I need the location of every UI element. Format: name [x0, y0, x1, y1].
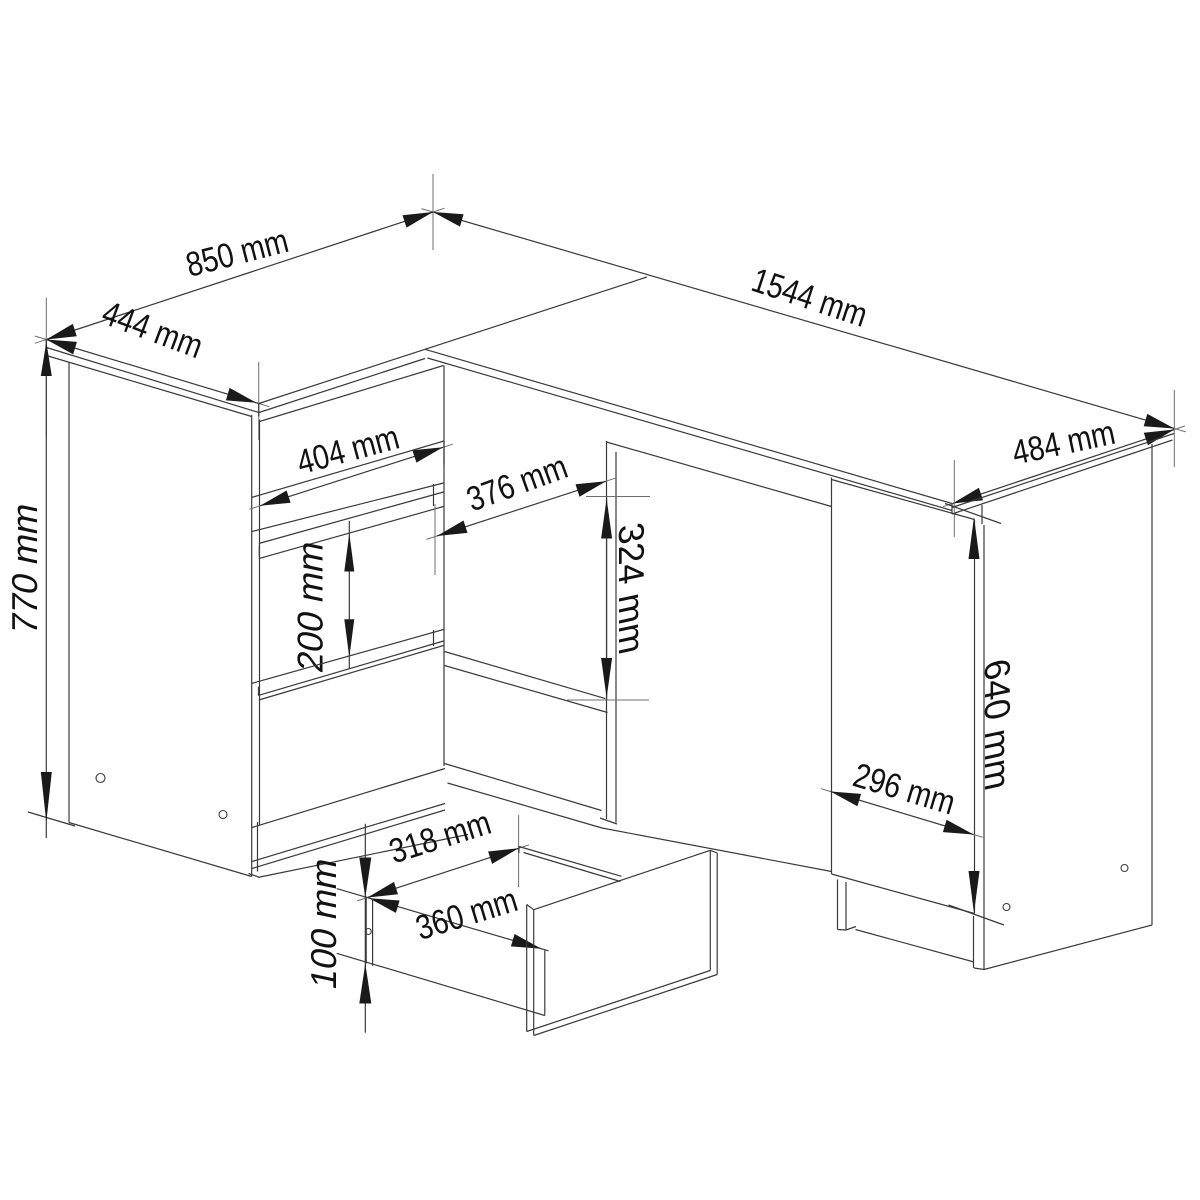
svg-text:640 mm: 640 mm	[977, 655, 1018, 794]
svg-text:100 mm: 100 mm	[303, 854, 344, 993]
svg-text:770 mm: 770 mm	[4, 499, 45, 638]
svg-text:324 mm: 324 mm	[611, 519, 652, 658]
svg-text:200 mm: 200 mm	[290, 537, 331, 676]
